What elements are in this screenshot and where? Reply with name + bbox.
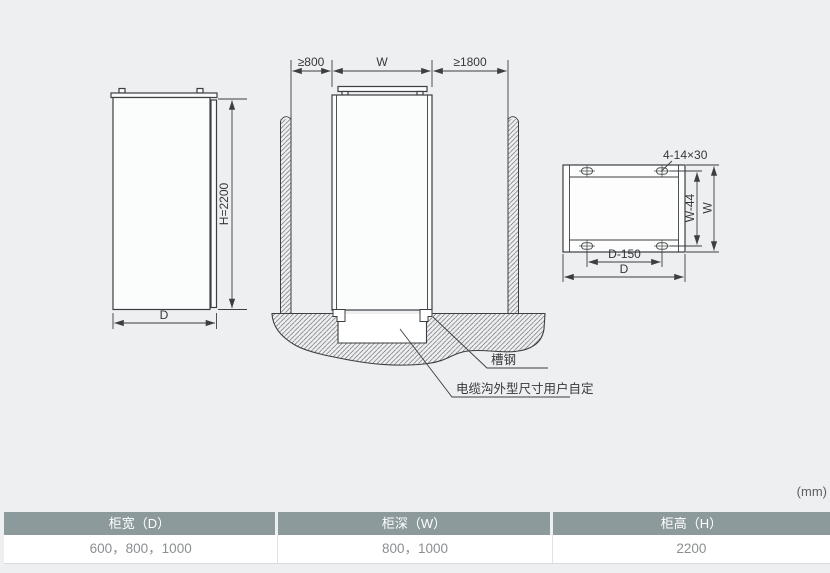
- depth-values: 800，1000: [277, 535, 551, 563]
- side-view: H=2200 D: [111, 89, 247, 330]
- wall-right: [508, 117, 519, 314]
- cabinet-installation-drawing: H=2200 D ≥800 W ≥1800: [0, 0, 830, 480]
- height-dimension-label: H=2200: [217, 182, 231, 225]
- lifting-lug: [197, 89, 203, 94]
- cabinet-roof-plate: [338, 87, 427, 92]
- channel-steel-label: 槽钢: [491, 353, 516, 367]
- base-plan-view: 4-14×30 W-44 W D-150 D: [563, 148, 719, 282]
- spec-table-row: 600，800，1000 800，1000 2200: [4, 535, 830, 564]
- lifting-lug: [119, 89, 125, 94]
- cabinet-top-plate: [111, 93, 217, 98]
- cabinet-body-front: [332, 95, 432, 310]
- technical-drawing: H=2200 D ≥800 W ≥1800: [0, 0, 830, 480]
- cable-trench-label: 电缆沟外型尺寸用户自定: [456, 381, 594, 396]
- cabinet-body-side: [113, 98, 210, 310]
- inner-width-label: W-44: [683, 193, 697, 222]
- front-view: ≥800 W ≥1800 槽钢 电缆: [272, 55, 594, 397]
- holes-label: 4-14×30: [663, 148, 708, 162]
- spec-table-header: 柜宽（D） 柜深（W） 柜高（H）: [4, 512, 830, 535]
- width-values: 600，800，1000: [4, 535, 277, 563]
- width-dimension-label: W: [376, 55, 388, 69]
- right-clearance-label: ≥1800: [453, 55, 487, 69]
- column-header-height: 柜高（H）: [553, 512, 830, 535]
- base-frame: [563, 165, 685, 252]
- column-header-width: 柜宽（D）: [4, 512, 275, 535]
- left-clearance-label: ≥800: [298, 55, 325, 69]
- wall-left: [281, 117, 292, 314]
- depth-dimension-label: D: [160, 308, 169, 322]
- hole-spacing-label: D-150: [608, 247, 641, 261]
- units-label: (mm): [707, 484, 827, 499]
- cable-trench: [339, 314, 426, 343]
- spec-table: 柜宽（D） 柜深（W） 柜高（H） 600，800，1000 800，1000 …: [4, 512, 830, 564]
- height-values: 2200: [552, 535, 830, 563]
- base-depth-label: D: [620, 262, 629, 276]
- cabinet-door-edge: [211, 100, 217, 308]
- base-width-label: W: [701, 202, 715, 214]
- column-header-depth: 柜深（W）: [278, 512, 550, 535]
